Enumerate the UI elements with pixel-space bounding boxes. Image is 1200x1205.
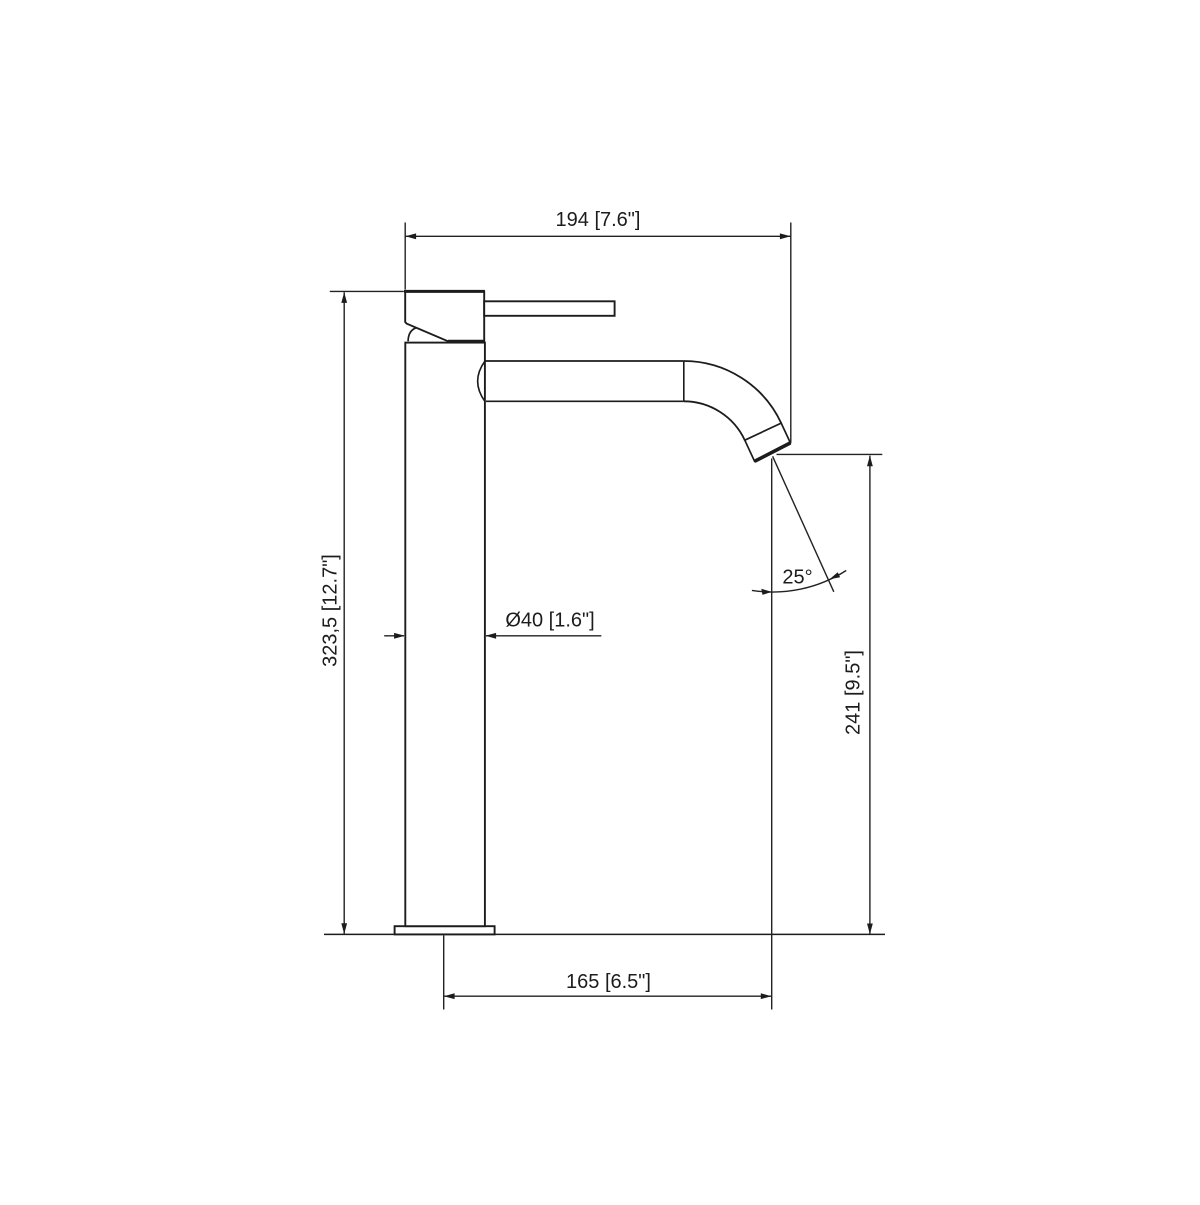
svg-text:165 [6.5"]: 165 [6.5"]	[566, 971, 651, 993]
svg-text:241 [9.5"]: 241 [9.5"]	[843, 650, 865, 735]
svg-text:194 [7.6"]: 194 [7.6"]	[556, 209, 641, 231]
svg-text:Ø40 [1.6"]: Ø40 [1.6"]	[505, 610, 594, 632]
svg-text:323,5 [12.7"]: 323,5 [12.7"]	[320, 554, 342, 667]
svg-text:25°: 25°	[782, 567, 812, 589]
